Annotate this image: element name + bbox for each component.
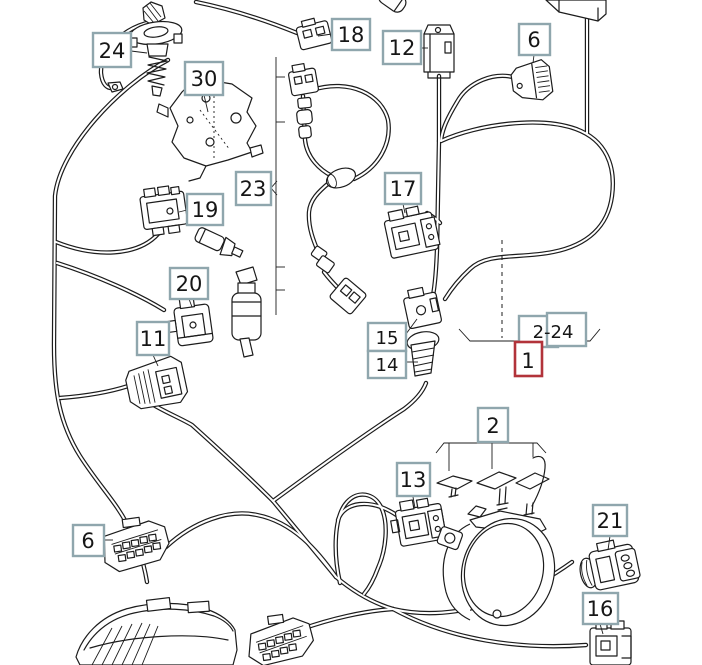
callout-6-top-label: 6 <box>527 28 540 52</box>
callout-15[interactable]: 15 <box>368 323 406 351</box>
part-12-connector <box>424 25 454 78</box>
callout-18-label: 18 <box>338 23 365 47</box>
callout-21[interactable]: 21 <box>593 505 627 536</box>
part-16-connector <box>590 621 631 665</box>
callout-18[interactable]: 18 <box>332 19 370 50</box>
callout-13-label: 13 <box>400 468 427 492</box>
region-23-boundary <box>276 57 285 315</box>
callout-30-label: 30 <box>191 67 218 91</box>
callout-24-label: 24 <box>99 39 126 63</box>
callout-12-label: 12 <box>389 36 416 60</box>
part-11-connector <box>123 354 190 412</box>
callout-16-label: 16 <box>587 597 614 621</box>
callout-2-label: 2 <box>486 414 499 438</box>
part-top-center-stub <box>376 0 409 15</box>
callout-1-highlighted[interactable]: 1 <box>515 342 542 376</box>
callout-20-label: 20 <box>176 272 203 296</box>
part-temperature-sensor <box>193 226 245 263</box>
callout-2-24-label: 2-24 <box>533 322 574 343</box>
part-6-top-connector <box>510 59 554 104</box>
callout-14-label: 14 <box>376 355 399 376</box>
part-17-connector <box>382 203 440 258</box>
callout-19[interactable]: 19 <box>187 194 223 225</box>
callout-30[interactable]: 30 <box>185 62 223 95</box>
part-19-connector <box>139 184 189 237</box>
callout-15-label: 15 <box>376 328 399 349</box>
ferrite-bead <box>324 164 358 191</box>
part-23-connector-top <box>287 62 319 96</box>
callout-19-label: 19 <box>192 198 219 222</box>
part-20-washer-pump <box>163 295 213 348</box>
part-18-connector <box>295 15 333 50</box>
part-21-connector <box>575 536 641 593</box>
wiring-harness-diagram: 24 30 18 12 6 23 17 19 20 11 15 14 <box>0 0 702 665</box>
callout-11[interactable]: 11 <box>137 322 169 355</box>
callout-23-label: 23 <box>240 177 267 201</box>
callout-16[interactable]: 16 <box>583 593 618 624</box>
callout-6-bottom[interactable]: 6 <box>73 525 104 556</box>
part-14-bulb-socket <box>406 329 441 376</box>
callout-20[interactable]: 20 <box>170 268 208 299</box>
part-15-connector <box>402 285 442 329</box>
callout-13[interactable]: 13 <box>397 463 430 496</box>
part-fog-light <box>436 506 566 636</box>
callout-17-label: 17 <box>390 177 417 201</box>
callout-11-label: 11 <box>140 327 167 351</box>
parts-diagram-canvas: 24 30 18 12 6 23 17 19 20 11 15 14 <box>0 0 702 665</box>
callout-17[interactable]: 17 <box>385 173 421 204</box>
callout-14[interactable]: 14 <box>368 351 406 378</box>
part-headlight <box>76 598 237 665</box>
callout-6-bottom-label: 6 <box>81 529 94 553</box>
callout-12[interactable]: 12 <box>383 31 421 64</box>
part-2-clips <box>437 456 549 515</box>
callout-24[interactable]: 24 <box>93 33 131 67</box>
callout-6-top[interactable]: 6 <box>519 24 550 55</box>
callout-2[interactable]: 2 <box>478 408 508 442</box>
part-top-right-bracket <box>546 0 606 21</box>
part-bottom-connector <box>244 611 316 665</box>
callout-21-label: 21 <box>597 509 624 533</box>
callout-23[interactable]: 23 <box>236 172 271 205</box>
part-washer-pump-2 <box>232 267 261 357</box>
callout-1-label: 1 <box>521 349 534 373</box>
part-6-bottom-connector <box>99 514 171 574</box>
